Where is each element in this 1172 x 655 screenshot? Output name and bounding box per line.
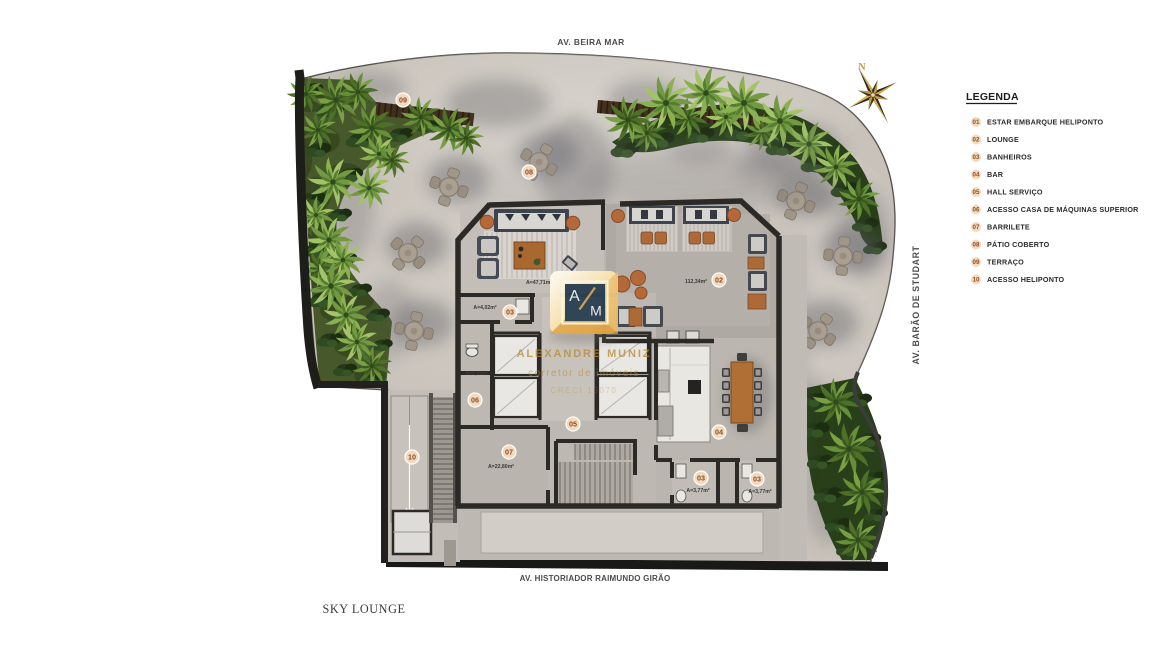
svg-text:09: 09 xyxy=(399,96,407,105)
svg-text:AV. BARÃO DE STUDART: AV. BARÃO DE STUDART xyxy=(911,245,921,364)
svg-text:02: 02 xyxy=(715,276,723,285)
svg-text:ALEXANDRE MUNIZ: ALEXANDRE MUNIZ xyxy=(517,348,652,360)
svg-text:07: 07 xyxy=(505,448,513,457)
svg-text:08: 08 xyxy=(973,242,980,249)
svg-text:04: 04 xyxy=(973,172,980,179)
svg-text:06: 06 xyxy=(973,207,980,214)
svg-text:LOUNGE: LOUNGE xyxy=(987,135,1019,144)
svg-text:08: 08 xyxy=(525,168,533,177)
svg-text:LEGENDA: LEGENDA xyxy=(966,91,1019,103)
svg-text:AV. BEIRA MAR: AV. BEIRA MAR xyxy=(557,37,624,47)
svg-text:BANHEIROS: BANHEIROS xyxy=(987,152,1032,161)
svg-text:10: 10 xyxy=(973,277,980,284)
svg-text:ACESSO CASA DE MÁQUINAS SUPERI: ACESSO CASA DE MÁQUINAS SUPERIOR xyxy=(987,205,1139,214)
svg-text:05: 05 xyxy=(973,189,980,196)
svg-text:BAR: BAR xyxy=(987,170,1004,179)
svg-text:TERRAÇO: TERRAÇO xyxy=(987,257,1024,266)
svg-text:03: 03 xyxy=(973,154,980,161)
svg-text:N: N xyxy=(858,62,866,73)
svg-text:01: 01 xyxy=(973,119,980,126)
svg-text:AV. HISTORIADOR RAIMUNDO GIRÃO: AV. HISTORIADOR RAIMUNDO GIRÃO xyxy=(520,574,671,583)
svg-text:112,34m²: 112,34m² xyxy=(685,279,707,285)
svg-text:03: 03 xyxy=(506,308,514,317)
svg-text:A=3,77m²: A=3,77m² xyxy=(748,489,771,495)
svg-text:BARRILETE: BARRILETE xyxy=(987,222,1030,231)
svg-text:ACESSO HELIPONTO: ACESSO HELIPONTO xyxy=(987,275,1065,284)
svg-text:ESTAR EMBARQUE HELIPONTO: ESTAR EMBARQUE HELIPONTO xyxy=(987,117,1104,126)
svg-text:PÁTIO COBERTO: PÁTIO COBERTO xyxy=(987,240,1050,249)
svg-text:04: 04 xyxy=(715,428,723,437)
svg-text:A=4,02m²: A=4,02m² xyxy=(473,305,496,311)
svg-text:03: 03 xyxy=(753,475,761,484)
svg-text:A=47,71m²: A=47,71m² xyxy=(526,280,552,286)
svg-text:07: 07 xyxy=(973,224,980,231)
svg-text:06: 06 xyxy=(471,396,479,405)
svg-text:A=6,50m²: A=6,50m² xyxy=(465,371,488,377)
svg-text:CRECI 15070: CRECI 15070 xyxy=(551,386,618,395)
svg-text:SKY LOUNGE: SKY LOUNGE xyxy=(322,602,405,616)
svg-text:corretor de imóveis: corretor de imóveis xyxy=(528,368,640,379)
svg-text:A: A xyxy=(569,288,580,305)
svg-text:A=22,80m²: A=22,80m² xyxy=(488,464,514,470)
svg-text:HALL SERVIÇO: HALL SERVIÇO xyxy=(987,187,1043,196)
svg-text:A=3,77m²: A=3,77m² xyxy=(686,488,709,494)
svg-text:M: M xyxy=(590,303,602,319)
svg-text:02: 02 xyxy=(973,137,980,144)
svg-text:03: 03 xyxy=(697,474,705,483)
svg-text:09: 09 xyxy=(973,259,980,266)
svg-text:05: 05 xyxy=(569,420,577,429)
svg-text:10: 10 xyxy=(408,453,416,462)
